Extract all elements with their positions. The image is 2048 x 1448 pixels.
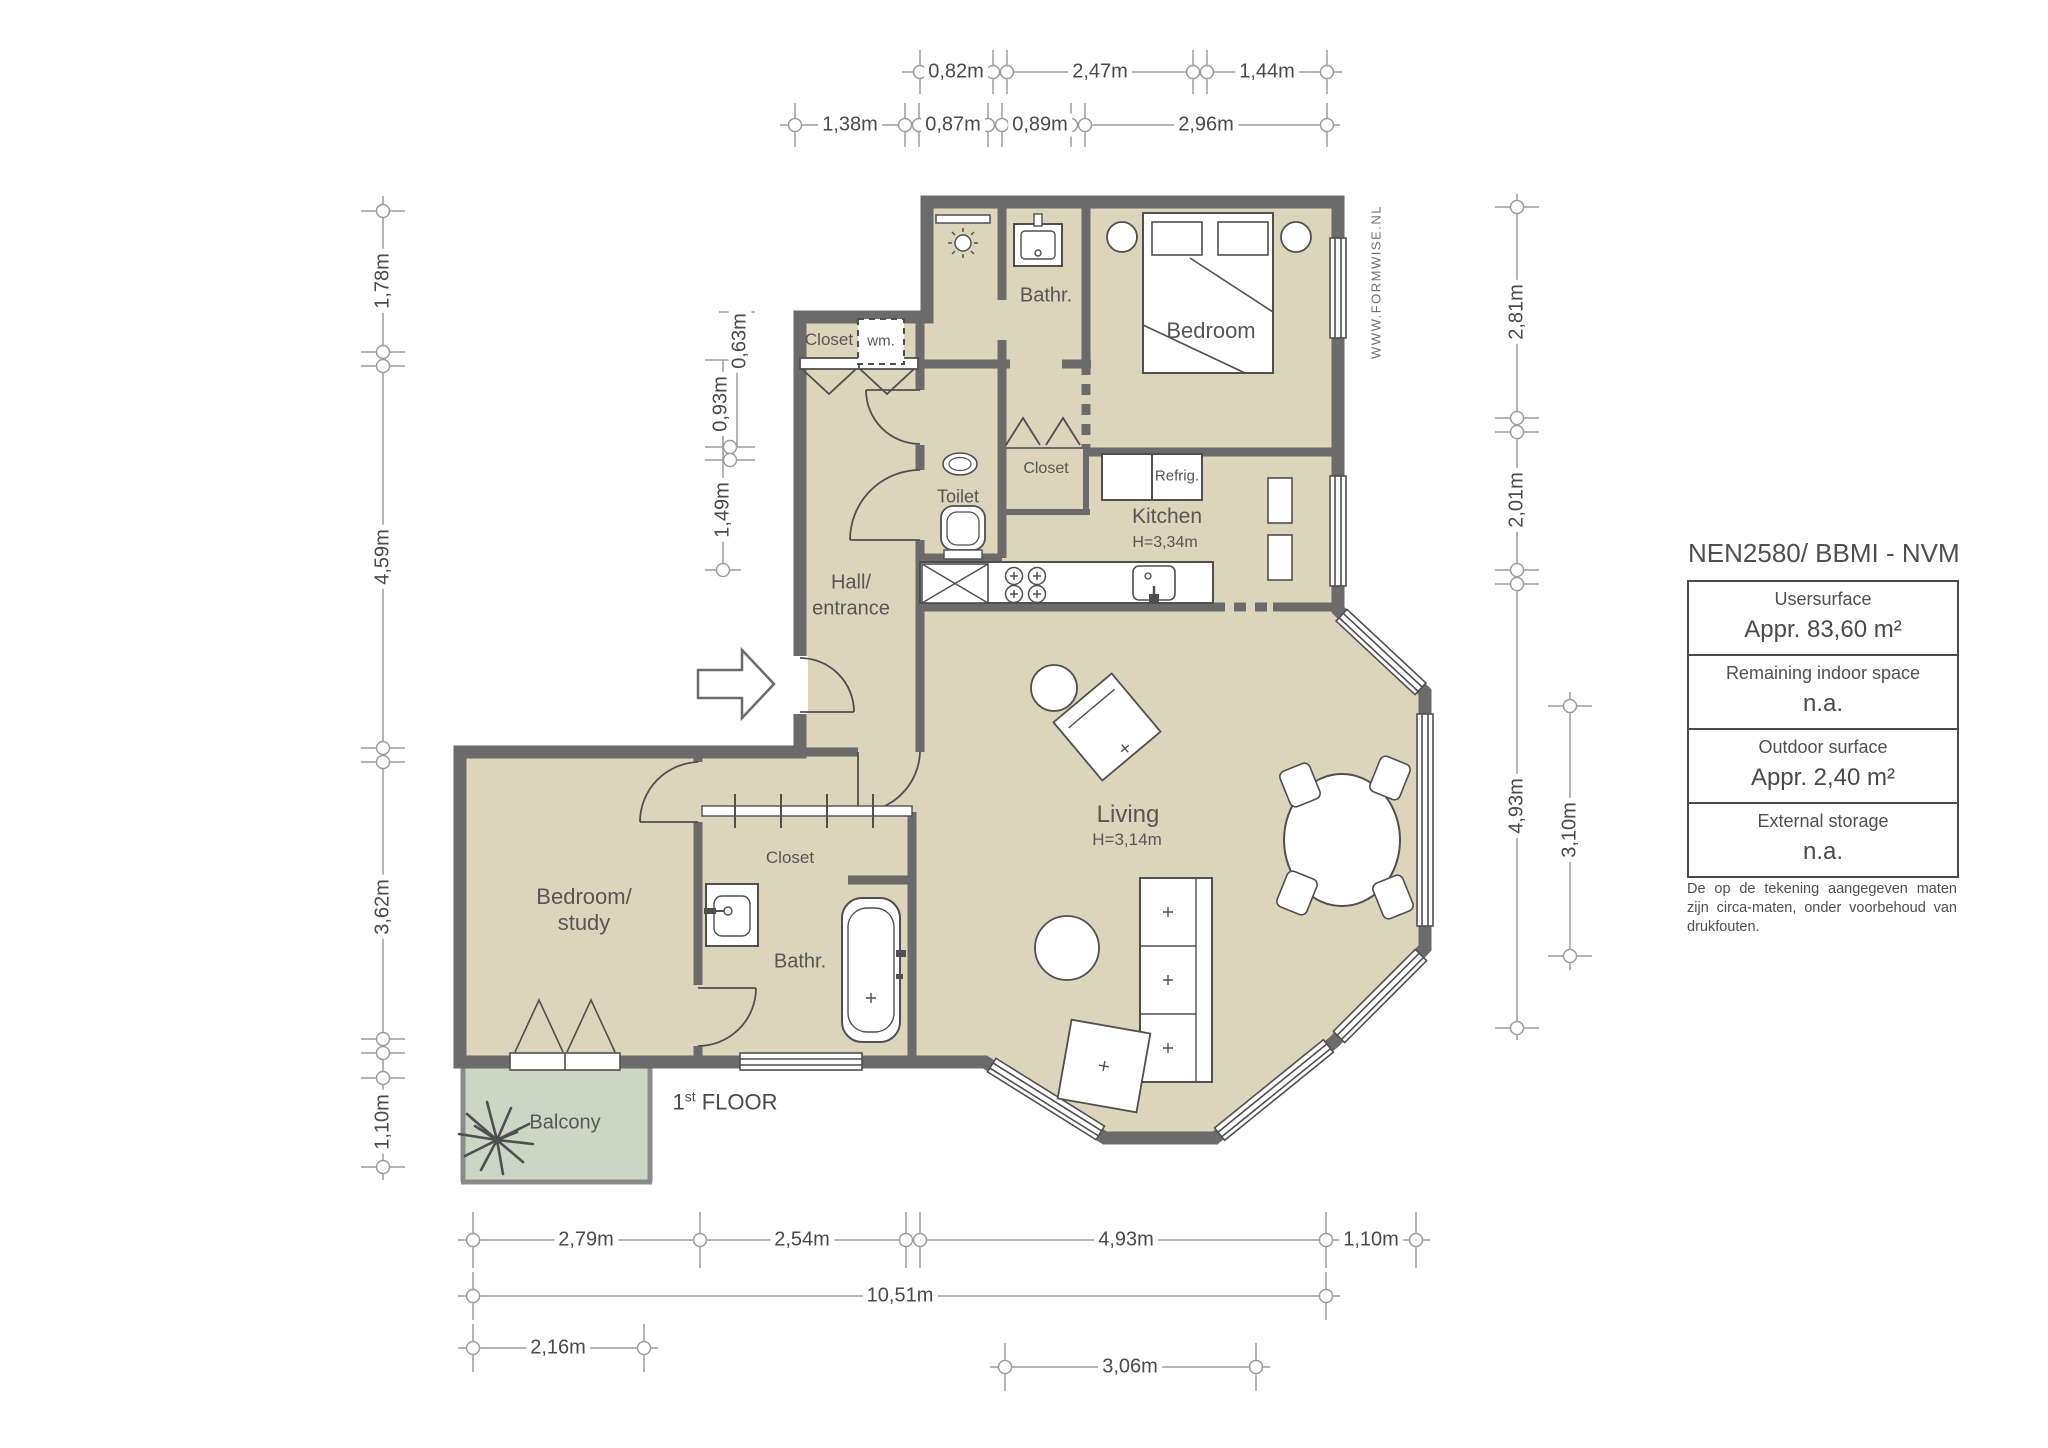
info-panel-title: NEN2580/ BBMI - NVM	[1688, 538, 1968, 569]
dim-label: 2,79m	[554, 1229, 618, 1252]
room-label-bedroom: Bedroom	[1166, 318, 1255, 344]
room-label-bathroom-bottom: Bathr.	[774, 951, 826, 974]
info-panel-table: Usersurface Appr. 83,60 m² Remaining ind…	[1687, 580, 1959, 878]
room-label-kitchen: Kitchen	[1132, 505, 1202, 529]
dim-label: 1,38m	[818, 114, 882, 137]
kitchen-cabinet-icon	[1102, 454, 1152, 500]
bedroom-window	[1330, 238, 1346, 338]
chaise-icon	[1058, 1020, 1151, 1113]
dim-label: 3,10m	[1559, 798, 1582, 862]
armchair-round-icon	[1035, 916, 1099, 980]
dim-label: 4,59m	[372, 525, 395, 589]
room-label-hall-2: entrance	[812, 598, 890, 621]
floor-label: 1st FLOOR	[672, 1088, 777, 1115]
info-row-label: Outdoor surface	[1693, 737, 1953, 758]
bathtub-icon	[842, 898, 906, 1042]
room-label-refrig: Refrig.	[1155, 468, 1199, 485]
brand-watermark: WWW.FORMWISE.NL	[1369, 205, 1384, 359]
info-row-outdoor-surface: Outdoor surface Appr. 2,40 m²	[1689, 730, 1957, 804]
nightstand-right-icon	[1281, 222, 1311, 252]
dim-label: 1,10m	[372, 1090, 395, 1154]
side-table-icon	[1031, 665, 1077, 711]
info-row-value: n.a.	[1693, 690, 1953, 718]
kitchen-counter	[920, 562, 1213, 603]
bathroom-window	[740, 1053, 862, 1070]
nightstand-left-icon	[1107, 222, 1137, 252]
info-row-external-storage: External storage n.a.	[1689, 804, 1957, 876]
entrance-arrow-icon	[698, 650, 774, 718]
floorplan-page: 0,82m 2,47m 1,44m 1,38m 0,87m 0,89m 2,96…	[0, 0, 2048, 1448]
dim-label: 2,47m	[1068, 61, 1132, 84]
window-chair-icon	[1268, 478, 1292, 523]
room-label-bedroom-study-2: study	[558, 910, 611, 936]
room-label-bathroom-top: Bathr.	[1020, 285, 1072, 308]
room-label-bedroom-study-1: Bedroom/	[536, 884, 631, 910]
dim-label: 2,54m	[770, 1229, 834, 1252]
room-label-balcony: Balcony	[529, 1112, 600, 1135]
bay-window-right	[1417, 714, 1433, 926]
info-row-label: Remaining indoor space	[1693, 663, 1953, 684]
toilet-icon	[941, 506, 985, 559]
room-label-living-height: H=3,14m	[1092, 830, 1161, 850]
dim-label: 3,62m	[372, 875, 395, 939]
window-chair-icon	[1268, 535, 1292, 580]
dim-label: 1,49m	[712, 478, 735, 542]
room-label-wm: wm.	[867, 333, 895, 350]
room-label-toilet: Toilet	[937, 487, 979, 508]
dim-label: 2,16m	[526, 1337, 590, 1360]
dim-label: 1,78m	[372, 249, 395, 313]
room-label-closet-bottom: Closet	[766, 848, 814, 868]
dim-label: 0,87m	[921, 114, 985, 137]
info-row-value: Appr. 2,40 m²	[1693, 764, 1953, 792]
info-row-value: Appr. 83,60 m²	[1693, 616, 1953, 644]
dim-label: 4,93m	[1506, 774, 1529, 838]
sofa-icon	[1140, 878, 1212, 1082]
dim-label: 1,10m	[1339, 1229, 1403, 1252]
shower-rail-icon	[936, 215, 990, 223]
dim-line-left	[361, 196, 405, 1180]
dim-label: 0,63m	[729, 309, 752, 373]
dim-label: 1,44m	[1235, 61, 1299, 84]
info-panel-disclaimer: De op de tekening aangegeven maten zijn …	[1687, 880, 1957, 937]
room-label-hall-1: Hall/	[831, 572, 871, 595]
room-label-closet-mid: Closet	[1023, 460, 1068, 478]
dim-label: 10,51m	[863, 1285, 938, 1308]
info-row-remaining-indoor: Remaining indoor space n.a.	[1689, 656, 1957, 730]
exterior-walls	[460, 202, 1425, 1138]
room-label-closet-top: Closet	[805, 330, 853, 350]
dim-label: 4,93m	[1094, 1229, 1158, 1252]
dim-label: 2,01m	[1506, 468, 1529, 532]
dim-label: 2,81m	[1506, 280, 1529, 344]
bed-icon	[1143, 213, 1273, 373]
dim-label: 0,93m	[710, 372, 733, 436]
dim-label: 0,82m	[924, 61, 988, 84]
dim-label: 3,06m	[1098, 1356, 1162, 1379]
info-row-value: n.a.	[1693, 838, 1953, 866]
dim-label: 2,96m	[1174, 114, 1238, 137]
info-row-label: External storage	[1693, 811, 1953, 832]
sink-bottom-icon	[704, 884, 758, 946]
room-label-kitchen-height: H=3,34m	[1132, 534, 1197, 552]
room-label-living: Living	[1097, 801, 1160, 829]
info-row-usersurface: Usersurface Appr. 83,60 m²	[1689, 582, 1957, 656]
shaft-icon	[922, 564, 988, 603]
info-row-label: Usersurface	[1693, 589, 1953, 610]
toilet-sink-icon	[943, 453, 977, 475]
kitchen-window	[1330, 476, 1346, 586]
dim-label: 0,89m	[1008, 114, 1072, 137]
